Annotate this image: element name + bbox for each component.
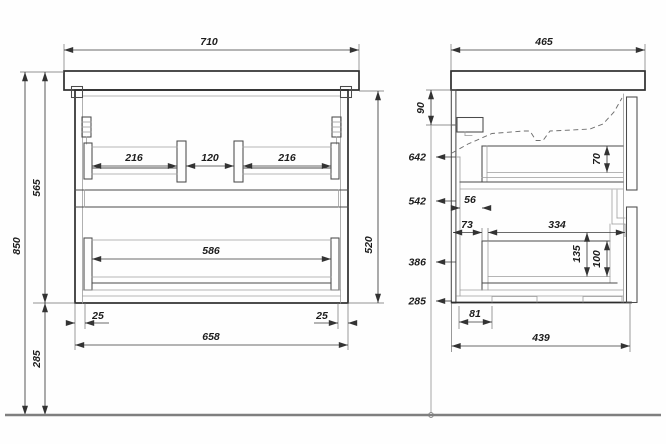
dim-front-top-width: 710 <box>200 36 218 48</box>
dim-front-body-height: 520 <box>363 236 375 254</box>
dim-front-cabinet-height: 565 <box>31 179 43 197</box>
dim-side-foot-inset: 81 <box>469 308 481 320</box>
vanity-drawing-svg: 710 565 850 285 520 216 120 216 586 <box>0 0 666 444</box>
dim-front-lower-rail: 586 <box>202 245 220 257</box>
dim-front-rail-right: 216 <box>277 152 296 164</box>
dim-side-level-b: 542 <box>408 196 426 208</box>
dim-front-rail-left: 216 <box>124 152 143 164</box>
front-corner-bracket-left <box>72 87 83 98</box>
dim-side-lower-back-gap: 73 <box>461 219 473 231</box>
front-hanging-bracket-left <box>82 117 91 144</box>
dim-side-level-d: 285 <box>407 296 426 308</box>
front-dimensions: 710 565 850 285 520 216 120 216 586 <box>11 36 384 415</box>
dim-front-floor-clearance: 285 <box>31 350 43 369</box>
side-lower-drawer-front <box>627 207 638 303</box>
dim-side-lower-drawer-depth: 135 <box>571 245 583 263</box>
side-upper-drawer <box>460 146 623 189</box>
side-countertop <box>451 71 645 90</box>
side-lower-front-bracket <box>612 190 625 224</box>
side-wall-bracket <box>452 118 483 136</box>
front-corner-bracket-right <box>341 87 352 98</box>
side-dimensions: 465 90 642 542 386 285 70 56 73 334 <box>407 36 645 417</box>
dim-side-level-a: 642 <box>408 152 426 164</box>
dim-side-level-c: 386 <box>408 257 426 269</box>
dim-side-upper-drawer-depth: 70 <box>591 153 603 165</box>
side-upper-drawer-front <box>627 97 638 190</box>
front-divider <box>75 190 348 207</box>
side-view <box>451 71 645 303</box>
dim-front-body-width: 658 <box>202 331 220 343</box>
side-foot-notch-right <box>583 297 622 303</box>
front-countertop <box>64 71 359 90</box>
side-back-panel <box>451 90 456 303</box>
dim-front-inset-right: 25 <box>315 310 328 322</box>
dim-side-lower-drawer-inner-depth: 100 <box>591 250 603 268</box>
dim-side-bracket-drop: 90 <box>415 102 427 114</box>
front-cabinet-body <box>75 90 348 303</box>
front-hanging-bracket-right <box>332 117 341 144</box>
dim-side-bottom-depth: 439 <box>531 332 550 344</box>
dim-side-top-depth: 465 <box>534 36 553 48</box>
dim-front-overall-height: 850 <box>11 237 23 255</box>
dim-side-lower-drawer-length: 334 <box>548 219 566 231</box>
side-foot-notch-left <box>492 297 537 303</box>
side-basin-profile-dashed <box>452 98 622 153</box>
technical-drawing-canvas: 710 565 850 285 520 216 120 216 586 <box>0 0 666 444</box>
dim-front-rail-gap: 120 <box>201 152 219 164</box>
front-view <box>64 71 359 303</box>
dim-front-inset-left: 25 <box>91 310 104 322</box>
dim-side-upper-back-gap: 56 <box>464 194 476 206</box>
